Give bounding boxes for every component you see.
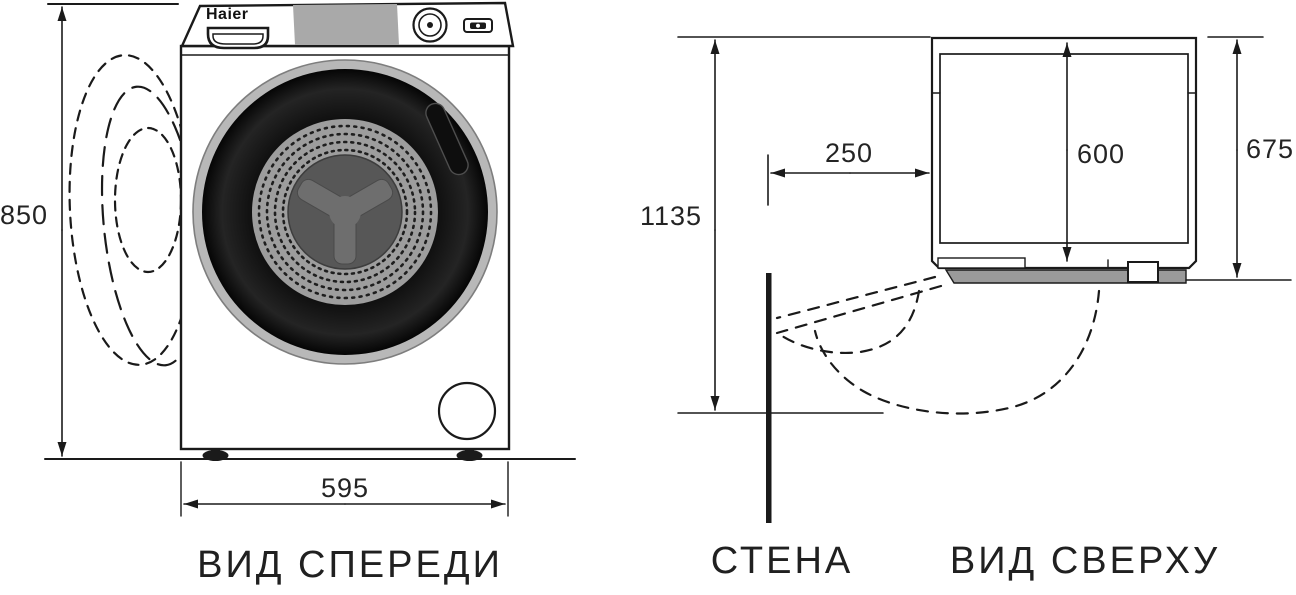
dim-overall-depth-675: 675 xyxy=(1230,134,1296,165)
dim-wall-gap-250: 250 xyxy=(809,138,889,169)
drain-pump-cover xyxy=(439,383,495,439)
dimension-diagram: Haier 850 595 ВИД СПЕРЕДИ 1135 250 600 6… xyxy=(0,0,1296,595)
wall-line xyxy=(766,273,772,523)
wall-caption: СТЕНА xyxy=(682,540,882,583)
front-view-caption: ВИД СПЕРЕДИ xyxy=(165,544,535,587)
dim-body-depth-600: 600 xyxy=(1061,139,1141,170)
door-window xyxy=(193,60,497,364)
dim-850-lines xyxy=(48,4,178,456)
front-step-panel xyxy=(938,258,1025,268)
program-knob xyxy=(414,9,447,42)
top-view-caption: ВИД СВЕРХУ xyxy=(930,540,1240,583)
front-view-drawing xyxy=(45,3,575,516)
brand-logo: Haier xyxy=(206,6,249,24)
dim-width-595: 595 xyxy=(305,473,385,504)
control-panel-display xyxy=(293,4,399,45)
dim-1135-lines xyxy=(678,37,930,410)
door-swing-paths xyxy=(777,277,1099,414)
diagram-linework xyxy=(0,0,1296,595)
dim-height-850: 850 xyxy=(0,200,46,231)
door-hinge-block xyxy=(1128,262,1158,282)
detergent-drawer xyxy=(208,28,268,48)
dim-open-depth-1135: 1135 xyxy=(630,201,702,232)
power-button-icon xyxy=(464,19,492,32)
